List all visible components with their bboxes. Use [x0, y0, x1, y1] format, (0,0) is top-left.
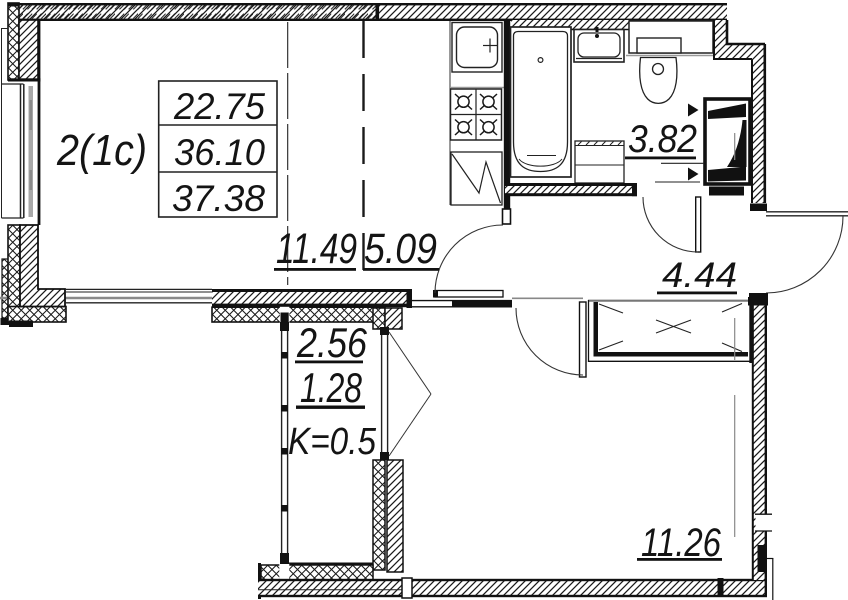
svg-text:36.10: 36.10: [174, 132, 265, 173]
svg-text:3.82: 3.82: [628, 118, 697, 161]
svg-text:11.49: 11.49: [276, 225, 357, 273]
svg-text:1.28: 1.28: [300, 364, 362, 411]
svg-text:22.75: 22.75: [173, 86, 265, 127]
svg-text:2(1c): 2(1c): [56, 126, 147, 175]
svg-text:5.09: 5.09: [364, 225, 437, 273]
svg-text:37.38: 37.38: [172, 178, 265, 219]
svg-text:2.56: 2.56: [296, 319, 367, 366]
svg-text:K=0.5: K=0.5: [288, 421, 377, 463]
svg-text:4.44: 4.44: [662, 256, 737, 295]
